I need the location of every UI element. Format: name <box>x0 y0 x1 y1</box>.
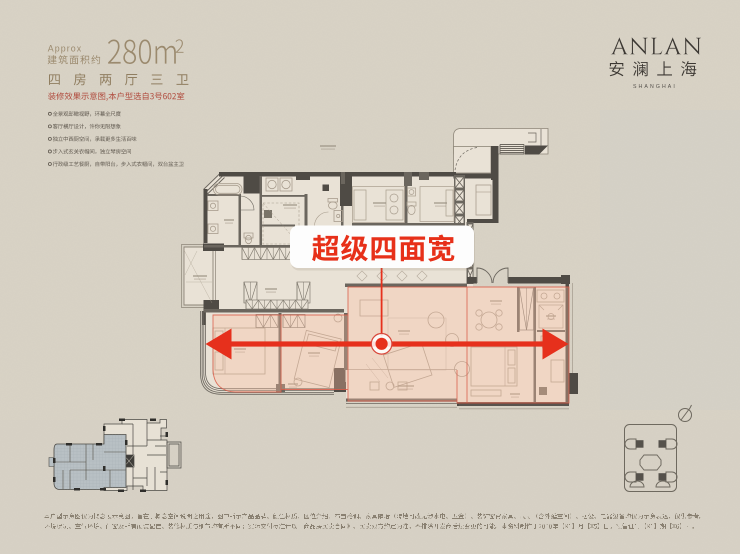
svg-text:Approx: Approx <box>48 43 82 53</box>
svg-text:SHANGHAI: SHANGHAI <box>633 84 677 90</box>
